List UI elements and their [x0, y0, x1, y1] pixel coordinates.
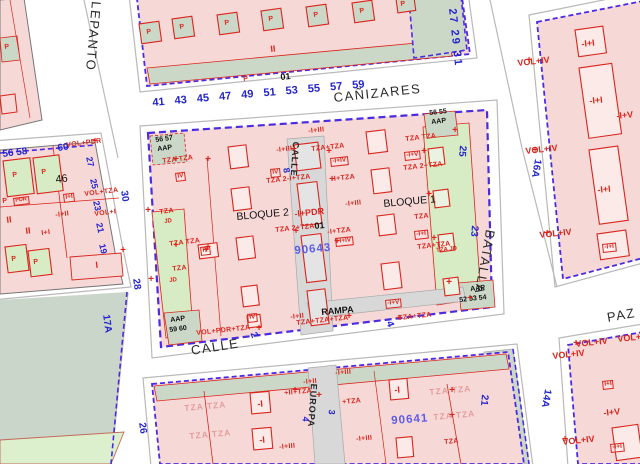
building-footprint [612, 424, 640, 460]
building-footprint [381, 262, 402, 290]
building-footprint [575, 26, 606, 57]
building-footprint [597, 230, 629, 260]
cell-aap-ne [424, 111, 458, 138]
building-footprint [294, 142, 321, 171]
building-footprint [307, 289, 329, 326]
map-vector-layer [0, 0, 640, 464]
building-footprint [241, 285, 259, 307]
building-footprint [371, 168, 392, 194]
building-footprint [247, 314, 261, 327]
cell-aap-nw [150, 133, 187, 165]
building-footprint [389, 378, 409, 399]
building-footprint [228, 145, 249, 169]
building-footprint [198, 243, 219, 259]
building-footprint [33, 155, 63, 194]
building-footprint [261, 8, 284, 31]
building-footprint [366, 130, 388, 154]
building-footprint [250, 391, 271, 414]
building-footprint [396, 0, 416, 13]
building-footprint [438, 233, 455, 252]
building-footprint [396, 437, 414, 458]
sliver-red-cell [0, 94, 17, 114]
building-footprint [217, 12, 240, 35]
building-footprint [139, 21, 162, 44]
building-footprint [443, 277, 460, 296]
building-footprint [433, 189, 450, 208]
cell-I [70, 253, 123, 280]
building-footprint [28, 248, 52, 276]
block-top-right-green [408, 0, 467, 58]
building-footprint [172, 16, 195, 39]
cadastral-map-canvas[interactable]: LEPANTOCAÑIZARESBATALLAPAZ DCALLECALLEEU… [0, 0, 640, 464]
building-footprint [306, 4, 329, 27]
building-footprint [3, 158, 34, 197]
building-footprint [252, 427, 273, 450]
building-footprint [236, 236, 256, 260]
building-footprint [377, 214, 396, 236]
cell-aap-sw [164, 310, 202, 345]
building-footprint [428, 147, 445, 166]
building-footprint [352, 0, 375, 23]
building-footprint [5, 244, 29, 272]
building-footprint [231, 187, 252, 211]
